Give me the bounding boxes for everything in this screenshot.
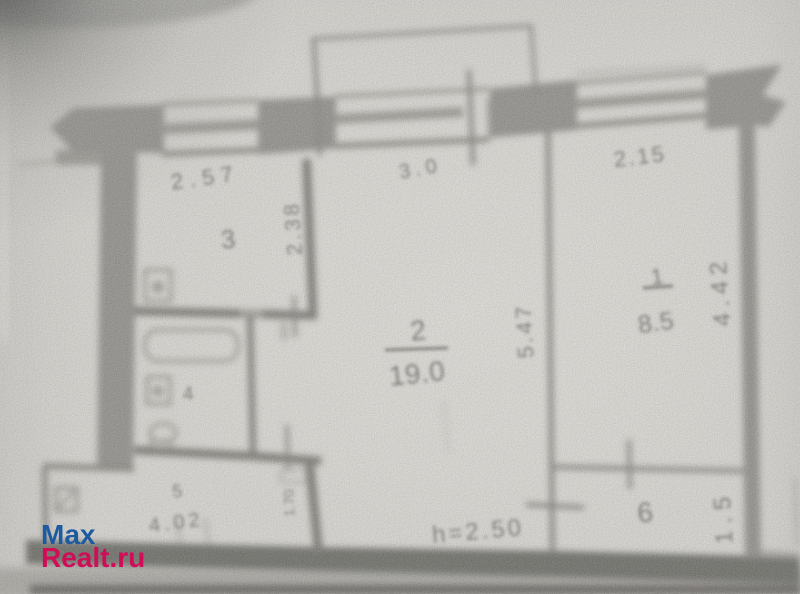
svg-text:Realt.ru: Realt.ru bbox=[41, 542, 145, 573]
